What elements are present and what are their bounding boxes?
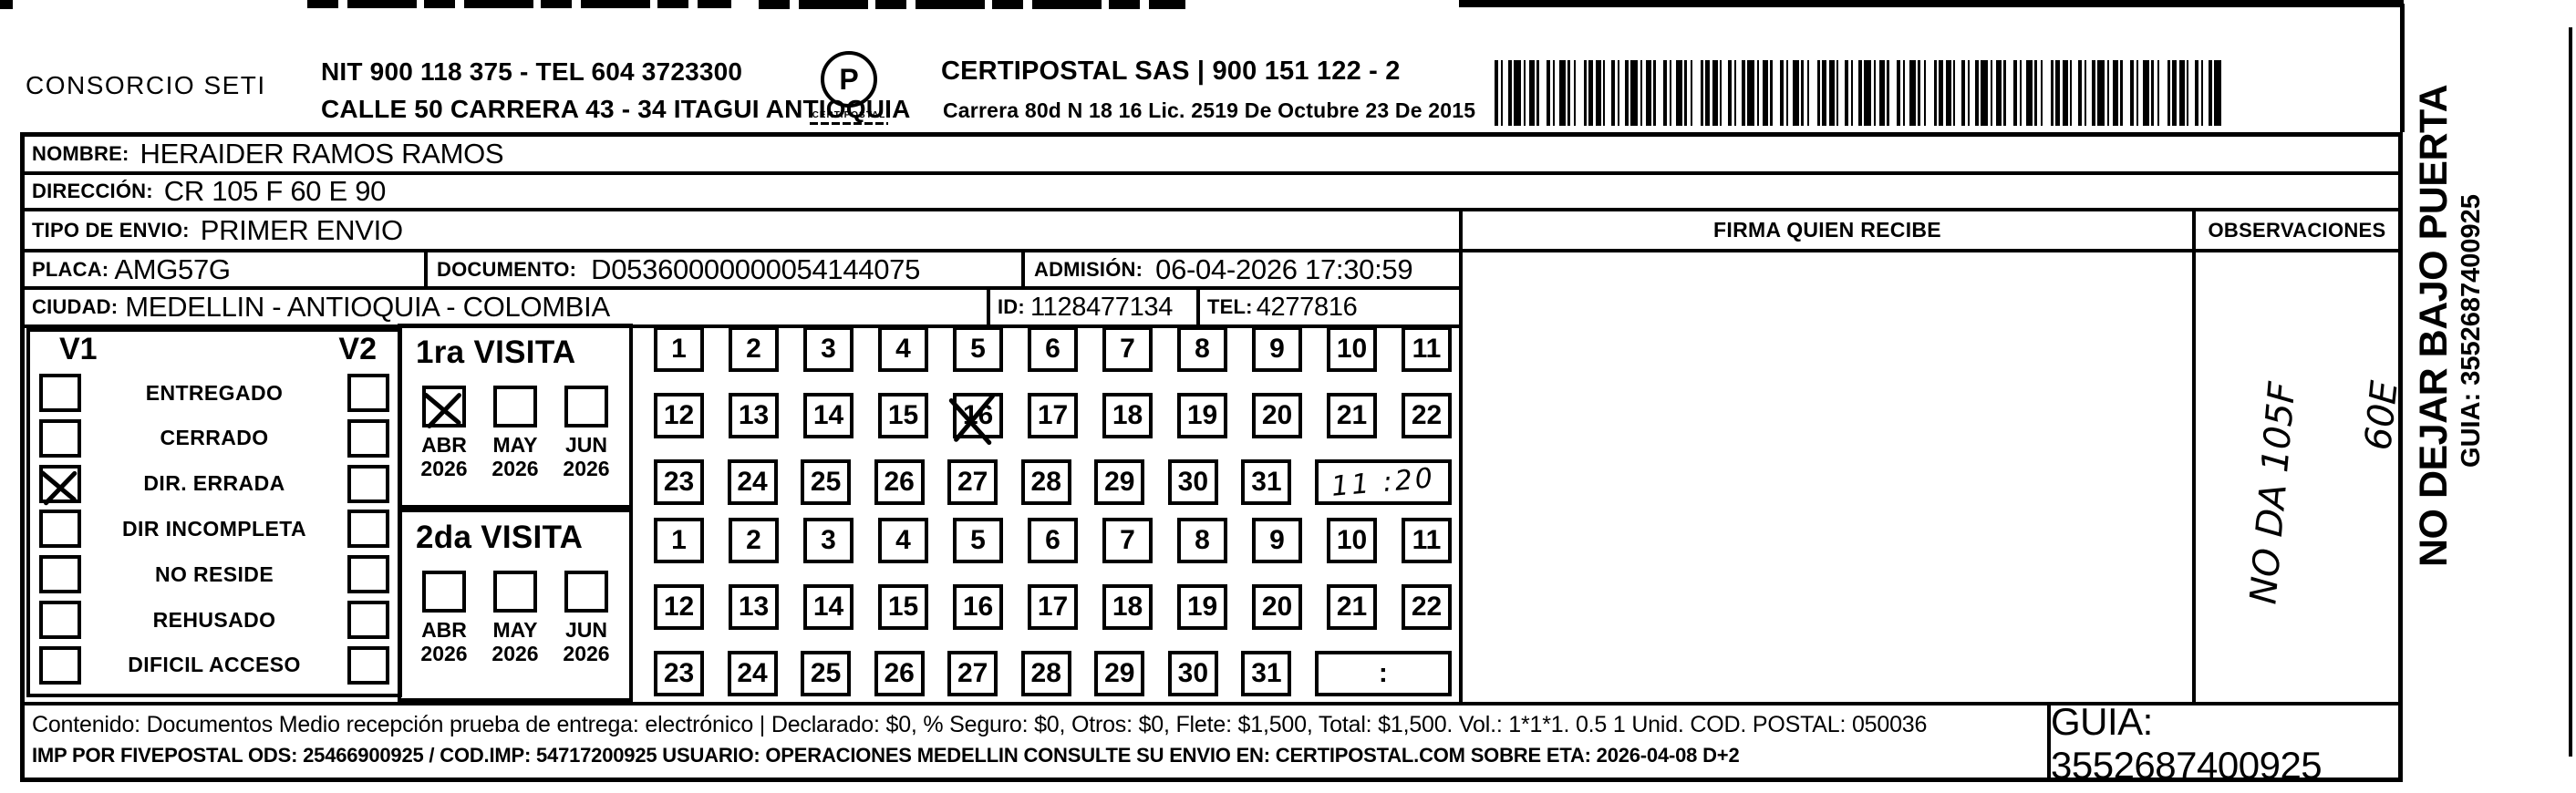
nombre-label: NOMBRE: [32,142,129,166]
day-cell: 24 [728,651,778,696]
v2-checkbox [347,374,389,412]
status-row: DIR. ERRADA [39,465,389,503]
nombre-value: HERAIDER RAMOS RAMOS [140,138,504,170]
month-column: JUN2026 [556,571,616,665]
tipo-envio-value: PRIMER ENVIO [201,214,403,247]
placa-value: AMG57G [114,253,230,286]
day-cell: 30 [1168,651,1218,696]
month-checkbox [493,571,537,613]
day-cell: 2 [729,518,779,563]
v2-checkbox [347,419,389,458]
row-nombre: NOMBRE: HERAIDER RAMOS RAMOS [25,137,2398,175]
status-options: ENTREGADOCERRADODIR. ERRADADIR INCOMPLET… [39,374,389,685]
day-cell: 21 [1327,584,1377,630]
row-direccion: DIRECCIÓN: CR 105 F 60 E 90 [25,175,2398,211]
day-cell: 10 [1327,518,1377,563]
v1-checkbox [39,601,81,639]
day-cell: 3 [803,326,853,372]
month-column: MAY2026 [485,386,545,480]
day-cell: 8 [1177,326,1227,372]
firma-header: FIRMA QUIEN RECIBE [1463,211,2192,252]
day-cell: 21 [1327,393,1377,438]
day-cell: 11 [1402,326,1452,372]
day-grid-row: 1213141516171819202122 [654,393,1452,438]
id-value: 1128477134 [1030,293,1173,323]
firma-column: FIRMA QUIEN RECIBE [1459,211,2196,702]
day-cell: 17 [1028,393,1078,438]
certipostal-logo-icon: P [821,51,877,108]
side-note-guia: GUIA: 3552687400925 [2457,194,2488,468]
day-grid-row: 1213141516171819202122 [654,584,1452,630]
day-cell: 30 [1168,459,1218,505]
certipostal-subtitle: Carrera 80d N 18 16 Lic. 2519 De Octubre… [943,98,1475,123]
v2-checkbox [347,555,389,593]
status-panel: V1 V2 ENTREGADOCERRADODIR. ERRADADIR INC… [26,328,402,697]
day-cell: 27 [947,651,998,696]
cell-placa: PLACA: AMG57G [25,252,428,290]
month-label: ABR2026 [420,433,467,480]
day-cell: 13 [729,393,779,438]
month-checkbox [493,386,537,427]
day-cell: 9 [1252,518,1302,563]
day-cell: 14 [803,393,853,438]
scan-artifact [2400,4,2405,132]
month-column: ABR2026 [414,571,474,665]
first-visit-months: ABR2026MAY2026JUN2026 [401,386,629,480]
placa-label: PLACA: [32,258,109,282]
day-grid-row: 1234567891011 [654,518,1452,563]
day-cell: 13 [729,584,779,630]
day-cell: 12 [654,393,704,438]
status-label: CERRADO [81,426,347,450]
second-visit-box: 2da VISITA ABR2026MAY2026JUN2026 [398,509,633,702]
month-column: MAY2026 [485,571,545,665]
status-row: REHUSADO [39,601,389,639]
day-cell: 31 [1241,651,1291,696]
v2-checkbox [347,465,389,503]
day-cell: 17 [1028,584,1078,630]
day-cell: 15 [878,584,928,630]
footer-content-cell: Contenido: Documentos Medio recepción pr… [25,705,2047,781]
footer-line2: IMP POR FIVEPOSTAL ODS: 25466900925 / CO… [32,744,2038,767]
v2-checkbox [347,601,389,639]
admision-value: 06-04-2026 17:30:59 [1155,253,1412,286]
ciudad-value: MEDELLIN - ANTIOQUIA - COLOMBIA [125,291,610,324]
v1-checkbox [39,374,81,412]
day-cell: 19 [1177,584,1227,630]
id-label: ID: [998,295,1025,319]
tel-label: TEL: [1207,295,1253,319]
observaciones-header: OBSERVACIONES [2196,211,2398,252]
day-cell: 31 [1241,459,1291,505]
cell-ciudad: CIUDAD: MEDELLIN - ANTIOQUIA - COLOMBIA [25,290,990,328]
status-label: DIFICIL ACCESO [81,653,347,677]
admision-label: ADMISIÓN: [1034,258,1143,282]
tel-value: 4277816 [1257,293,1358,323]
scan-artifact [1459,0,2404,7]
sender-company-name: CONSORCIO SETI [26,71,266,100]
cell-documento: DOCUMENTO: D05360000000054144075 [428,252,1021,290]
page-edge-line [2569,27,2572,757]
month-label: JUN2026 [563,433,609,480]
certipostal-logo: P CERTIPOSTAL [810,51,888,125]
day-cell: 23 [654,459,704,505]
status-row: DIFICIL ACCESO [39,646,389,685]
day-cell: 19 [1177,393,1227,438]
v1-label: V1 [59,332,98,367]
v2-label: V2 [338,332,377,367]
day-cell: 18 [1102,393,1153,438]
month-label: ABR2026 [420,618,467,665]
second-visit-months: ABR2026MAY2026JUN2026 [401,571,629,665]
day-cell: 1 [654,518,704,563]
month-checkbox [564,571,608,613]
day-cell: 20 [1252,393,1302,438]
status-row: ENTREGADO [39,374,389,412]
status-row: DIR INCOMPLETA [39,510,389,548]
cell-admision: ADMISIÓN: 06-04-2026 17:30:59 [1021,252,1459,290]
day-cell: 27 [947,459,998,505]
first-visit-title: 1ra VISITA [401,327,629,371]
scan-artifact [307,0,731,8]
direccion-value: CR 105 F 60 E 90 [164,175,386,208]
month-checkbox [422,386,466,427]
ciudad-label: CIUDAD: [32,295,118,319]
observaciones-handwriting-line1: NO DA 105F [2237,310,2311,676]
day-cell: 24 [728,459,778,505]
time-note: : [1379,658,1388,689]
documento-label: DOCUMENTO: [437,258,576,282]
status-label: NO RESIDE [81,562,347,587]
footer-guia-box: GUIA: 3552687400925 [2047,705,2398,781]
day-cell: 7 [1102,326,1153,372]
footer-row: Contenido: Documentos Medio recepción pr… [25,702,2398,778]
v1-checkbox [39,555,81,593]
month-checkbox [564,386,608,427]
row-tipo-envio: TIPO DE ENVIO: PRIMER ENVIO [25,211,1459,252]
day-cell: 22 [1402,393,1452,438]
day-cell: 28 [1021,651,1071,696]
day-cell: 6 [1028,326,1078,372]
day-cell: 16 [953,584,1003,630]
cell-id: ID: 1128477134 [990,290,1200,328]
day-cell: 18 [1102,584,1153,630]
day-cell: 26 [874,459,925,505]
day-cell: 12 [654,584,704,630]
v2-checkbox [347,646,389,685]
scanned-delivery-form: { "header": { "company": "CONSORCIO SETI… [0,0,2576,793]
day-cell: 4 [878,518,928,563]
v1-checkbox [39,419,81,458]
footer-guia-value: GUIA: 3552687400925 [2051,700,2398,788]
second-visit-day-grid: 1234567891011121314151617181920212223242… [654,518,1452,696]
scan-artifact [759,0,1185,9]
day-cell: 25 [801,651,851,696]
second-visit-title: 2da VISITA [401,512,629,556]
day-cell: 25 [801,459,851,505]
status-row: CERRADO [39,419,389,458]
observaciones-handwriting-line2: 60E [2354,341,2410,490]
observaciones-column: OBSERVACIONES NO DA 105F 60E [2196,211,2398,702]
day-grid-row: 232425262728293031: [654,651,1452,696]
v2-checkbox [347,510,389,548]
time-cell: : [1315,651,1452,696]
day-cell: 6 [1028,518,1078,563]
v1-checkbox [39,646,81,685]
day-cell: 15 [878,393,928,438]
certipostal-logo-rule [810,122,888,125]
first-visit-box: 1ra VISITA ABR2026MAY2026JUN2026 [398,324,633,509]
day-cell: 29 [1094,651,1144,696]
day-cell: 5 [953,518,1003,563]
certipostal-logo-word: CERTIPOSTAL [810,110,888,120]
day-cell: 1 [654,326,704,372]
cell-tel: TEL: 4277816 [1200,290,1459,328]
barcode [1495,60,2222,126]
day-cell: 16 [953,393,1003,438]
status-label: DIR INCOMPLETA [81,517,347,541]
day-cell: 5 [953,326,1003,372]
month-label: JUN2026 [563,618,609,665]
day-cell: 23 [654,651,704,696]
firma-signature-area [1463,252,2192,702]
scan-artifact [0,0,13,9]
status-label: DIR. ERRADA [81,471,347,496]
delivery-form-table: NOMBRE: HERAIDER RAMOS RAMOS DIRECCIÓN: … [20,132,2403,782]
first-visit-day-grid: 1234567891011121314151617181920212223242… [654,326,1452,505]
time-note: 11 :20 [1330,462,1437,503]
certipostal-title: CERTIPOSTAL SAS | 900 151 122 - 2 [941,57,1401,87]
side-note-no-dejar: NO DEJAR BAJO PUERTA [2412,111,2456,567]
month-label: MAY2026 [491,618,538,665]
documento-value: D05360000000054144075 [591,253,920,286]
day-cell: 29 [1094,459,1144,505]
day-grid-row: 23242526272829303111 :20 [654,459,1452,505]
v1-checkbox [39,510,81,548]
day-cell: 4 [878,326,928,372]
day-cell: 10 [1327,326,1377,372]
day-cell: 8 [1177,518,1227,563]
direccion-label: DIRECCIÓN: [32,180,153,203]
day-cell: 14 [803,584,853,630]
month-label: MAY2026 [491,433,538,480]
day-cell: 11 [1402,518,1452,563]
month-column: JUN2026 [556,386,616,480]
day-cell: 2 [729,326,779,372]
day-cell: 26 [874,651,925,696]
month-checkbox [422,571,466,613]
footer-line1: Contenido: Documentos Medio recepción pr… [32,712,2038,738]
day-cell: 7 [1102,518,1153,563]
month-column: ABR2026 [414,386,474,480]
day-cell: 20 [1252,584,1302,630]
day-cell: 3 [803,518,853,563]
status-label: REHUSADO [81,608,347,633]
v1-checkbox [39,465,81,503]
day-cell: 9 [1252,326,1302,372]
status-row: NO RESIDE [39,555,389,593]
status-label: ENTREGADO [81,381,347,406]
day-cell: 22 [1402,584,1452,630]
day-grid-row: 1234567891011 [654,326,1452,372]
tipo-envio-label: TIPO DE ENVIO: [32,219,190,242]
day-cell: 28 [1021,459,1071,505]
time-cell: 11 :20 [1315,459,1452,505]
